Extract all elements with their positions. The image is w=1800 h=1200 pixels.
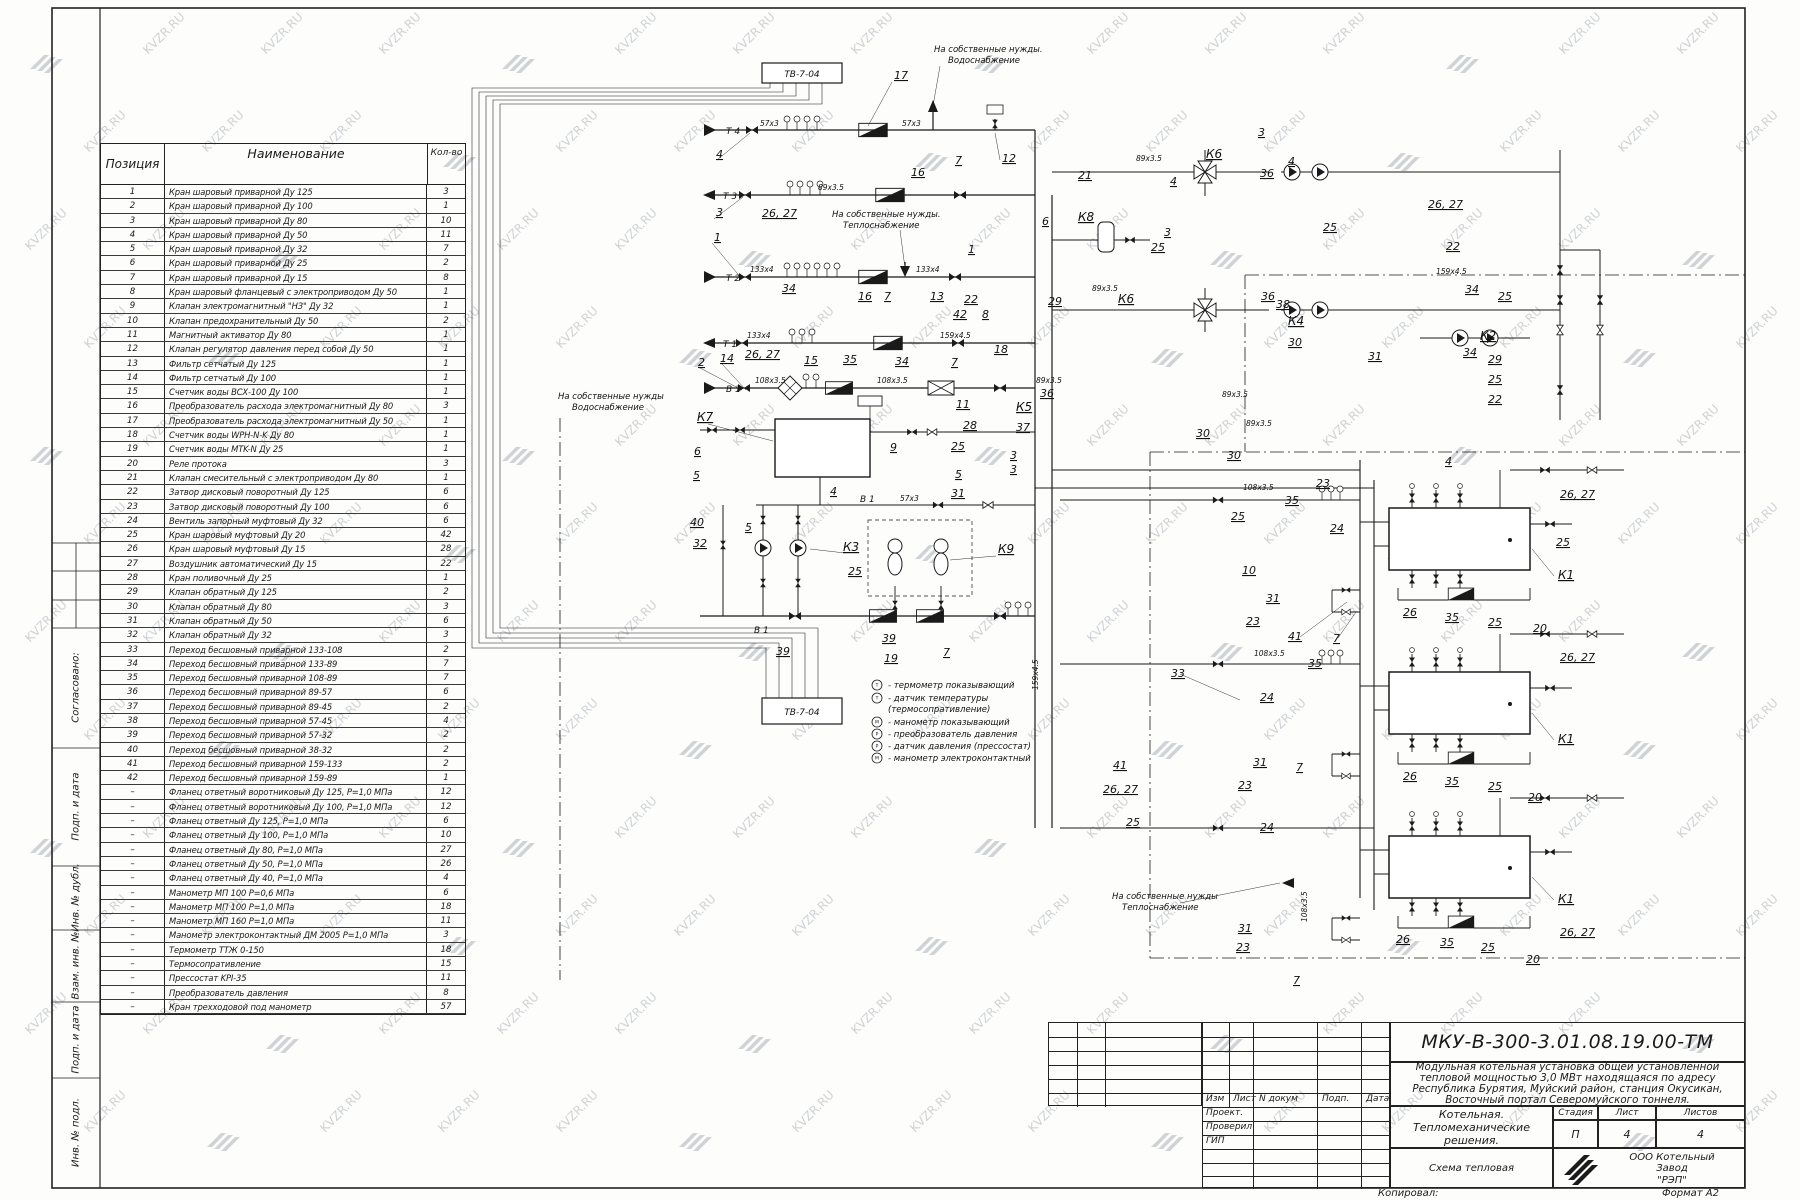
schematic-label: 20 [1533, 622, 1547, 635]
table-row: 28 Кран поливочный Ду 25 1 [101, 571, 465, 585]
schematic-label: 89x3.5 [1246, 419, 1272, 428]
watermark-text: KVZR.RU [612, 794, 659, 841]
watermark-text: KVZR.RU [1497, 108, 1544, 155]
watermark-text: KVZR.RU [789, 1088, 836, 1135]
watermark-text: KVZR.RU [1261, 108, 1308, 155]
scheme-type-label: Схема тепловая [1390, 1148, 1553, 1188]
row-qty: 3 [427, 600, 465, 613]
table-row: – Манометр МП 100 P=1,0 МПа 18 [101, 900, 465, 914]
schematic-label: 36 [1040, 387, 1054, 400]
row-name: Переход бесшовный приварной 133-108 [165, 643, 427, 656]
row-name: Кран шаровый приварной Ду 50 [165, 228, 427, 241]
row-position: 4 [101, 228, 165, 241]
row-name: Клапан обратный Ду 80 [165, 600, 427, 613]
row-qty: 2 [427, 314, 465, 327]
row-qty: 2 [427, 728, 465, 741]
legend-item-text: - манометр электроконтактный [888, 754, 1031, 764]
watermark-text: KVZR.RU [612, 10, 659, 57]
specification-table: Позиция Наименование Кол-во 1 Кран шаров… [100, 143, 466, 1015]
watermark-text: KVZR.RU [22, 206, 69, 253]
row-position: 32 [101, 628, 165, 641]
schematic-label: 34 [782, 282, 796, 295]
watermark-text: KVZR.RU [848, 10, 895, 57]
object-name-line-2: Тепломеханические решения. [1391, 1121, 1552, 1147]
row-name: Переход бесшовный приварной 89-45 [165, 700, 427, 713]
schematic-label: 35 [1285, 494, 1299, 507]
table-row: 23 Затвор дисковый поворотный Ду 100 6 [101, 500, 465, 514]
table-row: 38 Переход бесшовный приварной 57-45 4 [101, 714, 465, 728]
schematic-label: 25 [1231, 510, 1245, 523]
format-label: Формат А2 [1662, 1188, 1719, 1199]
schematic-label: Теплоснабжение [1122, 903, 1199, 913]
watermark-text: KVZR.RU [1084, 402, 1131, 449]
watermark-text: KVZR.RU [1674, 10, 1721, 57]
row-position: 9 [101, 299, 165, 312]
legend-item-text: - датчик температуры [888, 694, 989, 704]
row-name: Клапан обратный Ду 125 [165, 585, 427, 598]
row-qty: 18 [427, 943, 465, 956]
watermark-text: KVZR.RU [1674, 402, 1721, 449]
row-position: 10 [101, 314, 165, 327]
watermark-text: KVZR.RU [1615, 892, 1662, 939]
row-position: 33 [101, 643, 165, 656]
watermark-text: KVZR.RU [376, 10, 423, 57]
table-row: – Манометр МП 100 P=0,6 МПа 6 [101, 886, 465, 900]
watermark-text: KVZR.RU [789, 304, 836, 351]
schematic-label: 4 [716, 148, 723, 161]
watermark-text: KVZR.RU [1733, 108, 1780, 155]
watermark-text: KVZR.RU [1025, 304, 1072, 351]
row-position: – [101, 886, 165, 899]
schematic-label: 16 [911, 166, 925, 179]
schematic-label: 21 [1078, 169, 1092, 182]
schematic-label: К1 [1558, 568, 1574, 582]
schematic-label: На собственные нужды. [934, 45, 1043, 55]
row-qty: 3 [427, 628, 465, 641]
schematic-label: 37 [1016, 421, 1030, 434]
watermark-text: KVZR.RU [1084, 794, 1131, 841]
schematic-label: 7 [1293, 974, 1300, 987]
watermark-logo-icon [679, 349, 712, 367]
row-position: 34 [101, 657, 165, 670]
schematic-label: 34 [895, 355, 909, 368]
row-name: Кран шаровый приварной Ду 32 [165, 242, 427, 255]
row-position: – [101, 914, 165, 927]
col-header-name: Наименование [165, 144, 428, 184]
col-podp: Подп. [1319, 1093, 1349, 1104]
row-name: Затвор дисковый поворотный Ду 100 [165, 500, 427, 513]
row-name: Переход бесшовный приварной 38-32 [165, 743, 427, 756]
row-name: Манометр МП 100 P=1,0 МПа [165, 900, 427, 913]
schematic-label: 28 [963, 419, 977, 432]
legend-symbol-letter: Р [876, 744, 879, 750]
schematic-label: 31 [1238, 922, 1252, 935]
margin-label-inv-podl: Инв. № подл. [71, 1083, 82, 1183]
row-qty: 1 [427, 342, 465, 355]
table-row: 34 Переход бесшовный приварной 133-89 7 [101, 657, 465, 671]
legend-symbol-letter: М [875, 756, 879, 762]
table-row: 37 Переход бесшовный приварной 89-45 2 [101, 700, 465, 714]
row-qty: 1 [427, 771, 465, 784]
schematic-label: 57x3 [760, 119, 779, 128]
watermark-text: KVZR.RU [1025, 696, 1072, 743]
schematic-label: В 1 [726, 385, 741, 395]
row-name: Переход бесшовный приварной 57-45 [165, 714, 427, 727]
row-position: 26 [101, 542, 165, 555]
schematic-label: 25 [1498, 290, 1512, 303]
watermark-text: KVZR.RU [494, 990, 541, 1037]
row-name: Фильтр сетчатый Ду 125 [165, 357, 427, 370]
row-qty: 3 [427, 399, 465, 412]
stage-header: Стадия [1553, 1106, 1598, 1120]
schematic-label: Теплоснабжение [843, 221, 920, 231]
schematic-label: 25 [1488, 616, 1502, 629]
schematic-label: 25 [1488, 373, 1502, 386]
table-row: 9 Клапан электромагнитный "НЗ" Ду 32 1 [101, 299, 465, 313]
row-qty: 26 [427, 857, 465, 870]
row-position: 11 [101, 328, 165, 341]
col-data: Дата [1363, 1093, 1389, 1104]
schematic-label: 30 [1227, 449, 1241, 462]
stage-value: П [1553, 1120, 1598, 1148]
schematic-label: 108x3.5 [1254, 649, 1285, 658]
row-name: Клапан предохранительный Ду 50 [165, 314, 427, 327]
table-row: 40 Переход бесшовный приварной 38-32 2 [101, 743, 465, 757]
schematic-label: 26 [1403, 606, 1417, 619]
watermark-text: KVZR.RU [1025, 500, 1072, 547]
row-name: Кран шаровый муфтовый Ду 20 [165, 528, 427, 541]
row-name: Кран шаровый фланцевый с электроприводом… [165, 285, 427, 298]
watermark-text: KVZR.RU [553, 108, 600, 155]
schematic-label: 26, 27 [1560, 651, 1595, 664]
row-position: – [101, 828, 165, 841]
legend-item-text: (термосопративление) [888, 705, 990, 715]
schematic-label: 30 [1196, 427, 1210, 440]
row-gip: ГИП [1203, 1135, 1225, 1146]
watermark-logo-icon [738, 1035, 771, 1053]
schematic-label: К5 [1016, 400, 1032, 414]
row-name: Клапан обратный Ду 32 [165, 628, 427, 641]
row-qty: 4 [427, 871, 465, 884]
row-qty: 11 [427, 971, 465, 984]
schematic-label: 26, 27 [1560, 926, 1595, 939]
table-row: 30 Клапан обратный Ду 80 3 [101, 600, 465, 614]
row-name: Счетчик воды ВСХ-100 Ду 100 [165, 385, 427, 398]
schematic-label: 108x3.5 [1300, 891, 1309, 922]
watermark-text: KVZR.RU [1733, 304, 1780, 351]
row-position: 37 [101, 700, 165, 713]
schematic-label: 3 [1258, 126, 1265, 139]
row-position: 5 [101, 242, 165, 255]
schematic-label: 3 [1010, 463, 1017, 476]
watermark-logo-icon [679, 741, 712, 759]
watermark-text: KVZR.RU [1733, 696, 1780, 743]
row-qty: 7 [427, 657, 465, 670]
row-position: 13 [101, 357, 165, 370]
schematic-label: 25 [1151, 241, 1165, 254]
schematic-label: На собственные нужды. [832, 210, 941, 220]
schematic-label: Т 3 [723, 192, 737, 202]
table-row: 17 Преобразователь расхода электромагнит… [101, 414, 465, 428]
watermark-text: KVZR.RU [789, 892, 836, 939]
row-name: Манометр электроконтактный ДМ 2005 P=1,0… [165, 928, 427, 941]
table-row: 41 Переход бесшовный приварной 159-133 2 [101, 757, 465, 771]
sheet-header: Лист [1598, 1106, 1656, 1120]
row-position: 21 [101, 471, 165, 484]
row-qty: 1 [427, 471, 465, 484]
row-name: Манометр МП 100 P=0,6 МПа [165, 886, 427, 899]
row-qty: 15 [427, 957, 465, 970]
drawing-sheet: { "watermark": {"text": "KVZR.RU"}, "tv_… [0, 0, 1800, 1200]
schematic-label: 20 [1528, 791, 1542, 804]
watermark-text: KVZR.RU [1084, 10, 1131, 57]
schematic-label: 35 [1445, 611, 1459, 624]
schematic-label: На собственные нужды [558, 392, 664, 402]
document-number: МКУ-В-300-3.01.08.19.00-ТМ [1390, 1022, 1745, 1062]
table-row: – Фланец ответный воротниковый Ду 125, P… [101, 785, 465, 799]
schematic-label: 1 [714, 231, 721, 244]
row-name: Переход бесшовный приварной 57-32 [165, 728, 427, 741]
schematic-label: 33 [1171, 667, 1185, 680]
row-qty: 1 [427, 299, 465, 312]
schematic-label: 26, 27 [1103, 783, 1138, 796]
schematic-label: 19 [884, 652, 898, 665]
table-row: 4 Кран шаровый приварной Ду 50 11 [101, 228, 465, 242]
schematic-label: 24 [1260, 691, 1274, 704]
schematic-label: 10 [1242, 564, 1256, 577]
schematic-label: 108x3.5 [877, 376, 908, 385]
schematic-label: 23 [1238, 779, 1252, 792]
table-row: 18 Счетчик воды WPH-N-K Ду 80 1 [101, 428, 465, 442]
company-line-3: "РЭП" [1657, 1175, 1687, 1187]
watermark-text: KVZR.RU [1674, 794, 1721, 841]
row-qty: 1 [427, 357, 465, 370]
schematic-label: 2 [698, 356, 705, 369]
schematic-label: 8 [982, 308, 989, 321]
schematic-label: 32 [693, 537, 707, 550]
table-row: 32 Клапан обратный Ду 32 3 [101, 628, 465, 642]
schematic-label: На собственные нужды [1112, 892, 1218, 902]
row-name: Клапан смесительный с электроприводом Ду… [165, 471, 427, 484]
watermark-text: KVZR.RU [848, 990, 895, 1037]
row-name: Реле протока [165, 457, 427, 470]
spec-table-header: Позиция Наименование Кол-во [101, 144, 465, 185]
watermark-text: KVZR.RU [1615, 108, 1662, 155]
watermark-logo-icon [266, 1035, 299, 1053]
schematic-label: 133x4 [747, 331, 771, 340]
row-position: 2 [101, 199, 165, 212]
table-row: 15 Счетчик воды ВСХ-100 Ду 100 1 [101, 385, 465, 399]
row-position: – [101, 871, 165, 884]
row-position: 17 [101, 414, 165, 427]
row-position: – [101, 943, 165, 956]
row-position: 36 [101, 685, 165, 698]
row-qty: 10 [427, 828, 465, 841]
watermark-logo-icon [502, 55, 535, 73]
row-position: 16 [101, 399, 165, 412]
schematic-label: К7 [697, 410, 714, 424]
watermark-logo-icon [974, 839, 1007, 857]
row-name: Термосопративление [165, 957, 427, 970]
row-qty: 27 [427, 843, 465, 856]
schematic-label: 41 [1113, 759, 1127, 772]
schematic-label: 39 [776, 645, 790, 658]
schematic-label: К3 [843, 540, 859, 554]
row-qty: 10 [427, 214, 465, 227]
row-position: – [101, 1000, 165, 1013]
schematic-label: 25 [1323, 221, 1337, 234]
row-position: – [101, 971, 165, 984]
row-position: 25 [101, 528, 165, 541]
watermark-text: KVZR.RU [1497, 892, 1544, 939]
watermark-text: KVZR.RU [966, 990, 1013, 1037]
schematic-label: К6 [1206, 147, 1223, 161]
row-position: 18 [101, 428, 165, 441]
watermark-logo-icon [1623, 741, 1656, 759]
schematic-label: 57x3 [902, 119, 921, 128]
schematic-label: 40 [690, 516, 704, 529]
watermark-text: KVZR.RU [1320, 402, 1367, 449]
schematic-label: 38 [1276, 298, 1290, 311]
watermark-text: KVZR.RU [730, 10, 777, 57]
row-name: Переход бесшовный приварной 159-89 [165, 771, 427, 784]
table-row: 11 Магнитный активатор Ду 80 1 [101, 328, 465, 342]
schematic-label: 26, 27 [1428, 198, 1463, 211]
row-qty: 6 [427, 814, 465, 827]
table-row: 22 Затвор дисковый поворотный Ду 125 6 [101, 485, 465, 499]
legend-item-text: - термометр показывающий [888, 681, 1015, 691]
schematic-label: К1 [1558, 892, 1574, 906]
row-qty: 2 [427, 757, 465, 770]
watermark-text: KVZR.RU [1556, 206, 1603, 253]
kopiroval-label: Копировал: [1378, 1188, 1439, 1199]
watermark-text: KVZR.RU [1320, 598, 1367, 645]
watermark-logo-icon [1210, 643, 1243, 661]
schematic-label: 108x3.5 [1243, 483, 1274, 492]
table-row: – Прессостат KPI-35 11 [101, 971, 465, 985]
row-name: Клапан обратный Ду 50 [165, 614, 427, 627]
row-qty: 1 [427, 371, 465, 384]
table-row: 21 Клапан смесительный с электроприводом… [101, 471, 465, 485]
schematic-label: 89x3.5 [1222, 390, 1248, 399]
watermark-text: KVZR.RU [907, 1088, 954, 1135]
row-qty: 6 [427, 500, 465, 513]
schematic-label: 34 [1465, 283, 1479, 296]
watermark-text: KVZR.RU [1556, 10, 1603, 57]
schematic-label: Т 1 [723, 340, 737, 350]
row-position: 40 [101, 743, 165, 756]
table-row: 8 Кран шаровый фланцевый с электропривод… [101, 285, 465, 299]
schematic-label: 4 [1445, 455, 1452, 468]
row-position: – [101, 957, 165, 970]
watermark-text: KVZR.RU [1143, 108, 1190, 155]
watermark-logo-icon [207, 1133, 240, 1151]
table-row: 3 Кран шаровый приварной Ду 80 10 [101, 214, 465, 228]
schematic-label: 35 [1445, 775, 1459, 788]
row-qty: 6 [427, 886, 465, 899]
row-name: Кран шаровый приварной Ду 25 [165, 256, 427, 269]
watermark-text: KVZR.RU [1497, 304, 1544, 351]
row-proveril: Проверил [1203, 1121, 1252, 1132]
watermark-text: KVZR.RU [553, 304, 600, 351]
watermark-text: KVZR.RU [317, 1088, 364, 1135]
schematic-label: 7 [1333, 632, 1340, 645]
company-line-2: Завод [1656, 1163, 1687, 1175]
watermark-text: KVZR.RU [22, 598, 69, 645]
legend-item-text: - преобразователь давления [888, 730, 1017, 740]
schematic-label: 35 [843, 353, 857, 366]
row-name: Кран поливочный Ду 25 [165, 571, 427, 584]
row-name: Кран шаровый приварной Ду 80 [165, 214, 427, 227]
schematic-label: 29 [1488, 353, 1502, 366]
watermark-text: KVZR.RU [1202, 10, 1249, 57]
schematic-label: 26, 27 [762, 207, 797, 220]
spec-table-rows: 1 Кран шаровый приварной Ду 125 3 2 Кран… [101, 185, 465, 1014]
row-position: 30 [101, 600, 165, 613]
schematic-label: 89x3.5 [1092, 284, 1118, 293]
watermark-text: KVZR.RU [1025, 892, 1072, 939]
row-name: Фланец ответный воротниковый Ду 100, P=1… [165, 800, 427, 813]
row-name: Фланец ответный Ду 80, P=1,0 МПа [165, 843, 427, 856]
table-row: 33 Переход бесшовный приварной 133-108 2 [101, 643, 465, 657]
schematic-label: 15 [804, 354, 818, 367]
row-position: – [101, 800, 165, 813]
row-qty: 2 [427, 585, 465, 598]
row-position: 24 [101, 514, 165, 527]
table-row: – Термометр ТТЖ 0-150 18 [101, 943, 465, 957]
table-row: 19 Счетчик воды MTK-N Ду 25 1 [101, 442, 465, 456]
schematic-label: 159x4.5 [1436, 267, 1467, 276]
table-row: 20 Реле протока 3 [101, 457, 465, 471]
company-logo [1562, 1151, 1600, 1187]
schematic-label: 89x3.5 [1036, 376, 1062, 385]
watermark-text: KVZR.RU [1320, 10, 1367, 57]
watermark-text: KVZR.RU [612, 990, 659, 1037]
watermark-logo-icon [30, 839, 63, 857]
schematic-label: 7 [884, 290, 891, 303]
row-qty: 3 [427, 928, 465, 941]
sheet-value: 4 [1598, 1120, 1656, 1148]
row-position: – [101, 843, 165, 856]
schematic-label: К6 [1118, 292, 1135, 306]
row-qty: 1 [427, 199, 465, 212]
row-name: Преобразователь расхода электромагнитный… [165, 414, 427, 427]
table-row: 14 Фильтр сетчатый Ду 100 1 [101, 371, 465, 385]
schematic-label: 25 [1126, 816, 1140, 829]
watermark-logo-icon [502, 447, 535, 465]
schematic-label: Водоснабжение [948, 56, 1020, 66]
row-position: – [101, 928, 165, 941]
table-row: 1 Кран шаровый приварной Ду 125 3 [101, 185, 465, 199]
watermark-text: KVZR.RU [1556, 598, 1603, 645]
table-row: 39 Переход бесшовный приварной 57-32 2 [101, 728, 465, 742]
row-qty: 11 [427, 914, 465, 927]
row-name: Переход бесшовный приварной 89-57 [165, 685, 427, 698]
row-qty: 6 [427, 614, 465, 627]
row-position: 41 [101, 757, 165, 770]
row-name: Клапан электромагнитный "НЗ" Ду 32 [165, 299, 427, 312]
table-row: 5 Кран шаровый приварной Ду 32 7 [101, 242, 465, 256]
watermark-logo-icon [1682, 251, 1715, 269]
schematic-label: 23 [1236, 941, 1250, 954]
watermark-text: KVZR.RU [435, 1088, 482, 1135]
row-position: 6 [101, 256, 165, 269]
schematic-label: 31 [1368, 350, 1382, 363]
schematic-label: 24 [1260, 821, 1274, 834]
document-description: Модульная котельная установка общей уста… [1390, 1062, 1745, 1106]
row-qty: 4 [427, 714, 465, 727]
schematic-label: 25 [848, 565, 862, 578]
